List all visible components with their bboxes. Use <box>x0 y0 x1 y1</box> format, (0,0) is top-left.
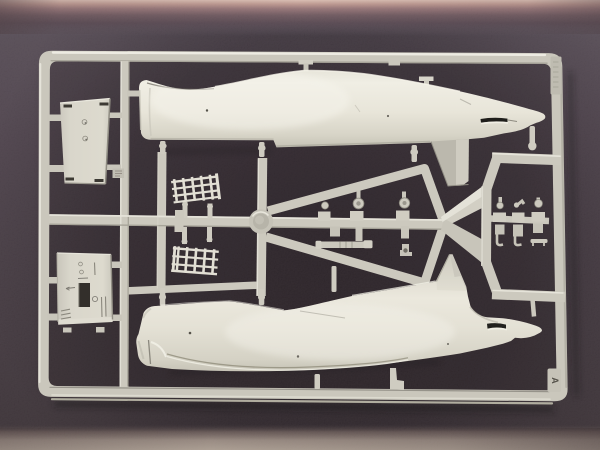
svg-text:A: A <box>550 377 560 384</box>
